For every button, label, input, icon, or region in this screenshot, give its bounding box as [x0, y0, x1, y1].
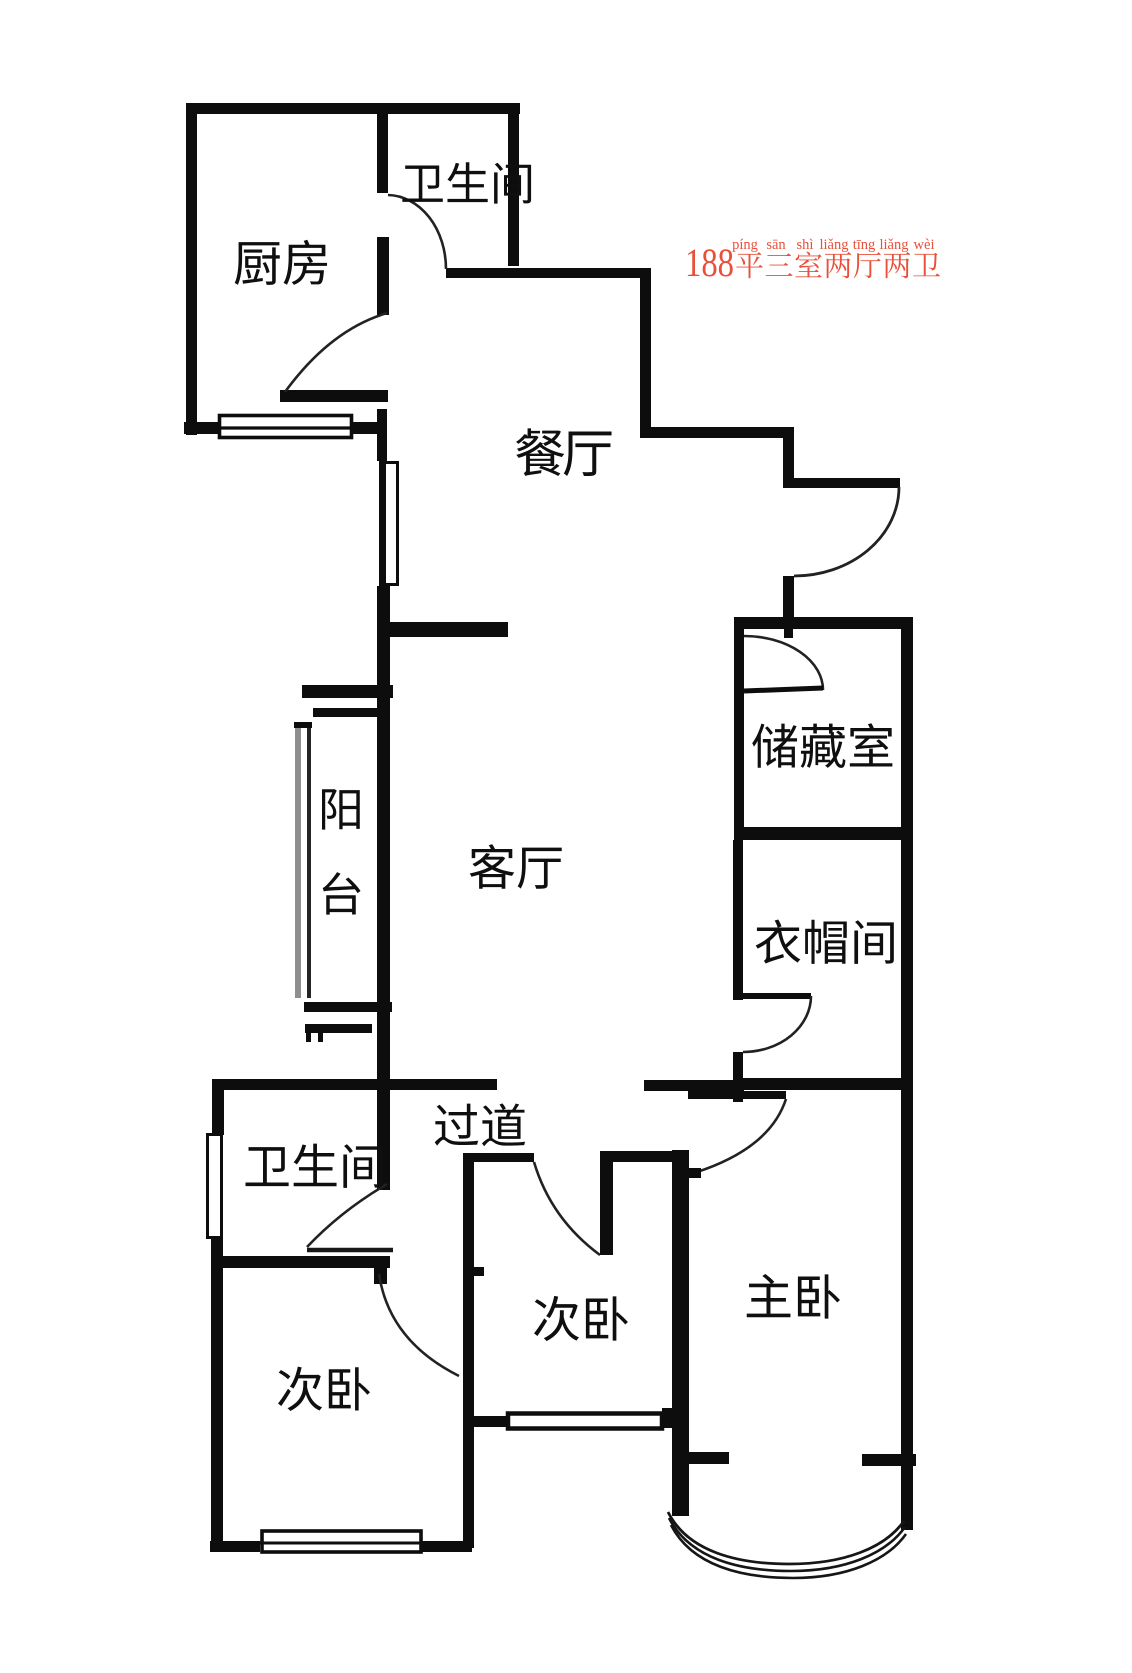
svg-text:tīng: tīng	[853, 237, 876, 253]
svg-text:188: 188	[685, 240, 734, 285]
svg-text:píng: píng	[732, 237, 758, 253]
svg-text:shì: shì	[797, 237, 814, 253]
svg-text:liǎng: liǎng	[880, 237, 909, 253]
svg-text:liǎng: liǎng	[820, 237, 849, 253]
svg-text:wèi: wèi	[914, 237, 935, 253]
svg-text:sān: sān	[766, 237, 786, 253]
